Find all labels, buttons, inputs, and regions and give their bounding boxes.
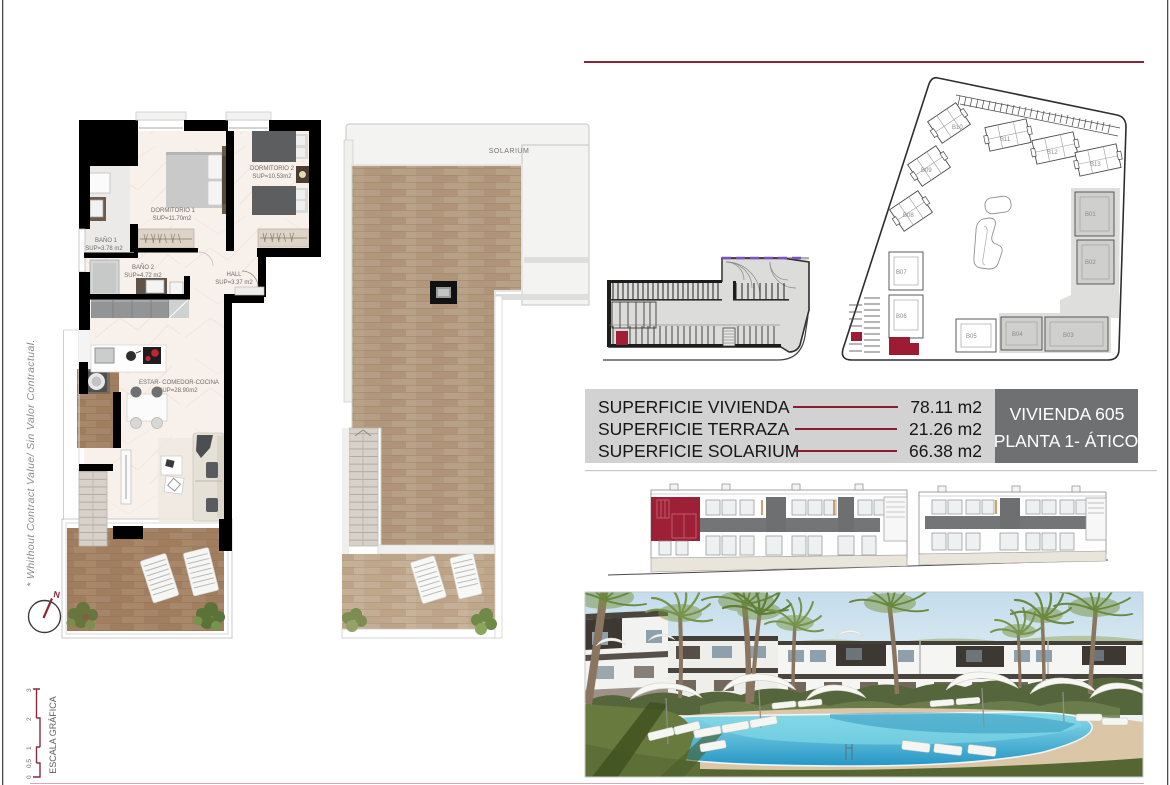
svg-text:DORMITORIO 2: DORMITORIO 2 [250, 166, 295, 172]
svg-text:SUP=10.53m2: SUP=10.53m2 [252, 174, 292, 180]
svg-text:SUPERFICIE TERRAZA: SUPERFICIE TERRAZA [598, 419, 790, 439]
svg-text:2: 2 [26, 717, 33, 721]
svg-text:B11: B11 [1000, 137, 1011, 143]
svg-text:B05: B05 [966, 334, 977, 340]
svg-text:0,5: 0,5 [26, 759, 33, 768]
svg-text:SUPERFICIE SOLARIUM: SUPERFICIE SOLARIUM [598, 441, 799, 461]
svg-text:B03: B03 [1063, 333, 1074, 339]
svg-text:B07: B07 [896, 270, 907, 276]
svg-text:PLANTA 1- ÁTICO: PLANTA 1- ÁTICO [994, 431, 1139, 451]
svg-text:B10: B10 [952, 125, 963, 131]
svg-text:1: 1 [26, 746, 33, 750]
svg-text:SOLARIUM: SOLARIUM [489, 148, 530, 155]
svg-text:SUP=3.37 m2: SUP=3.37 m2 [215, 280, 253, 286]
svg-text:B06: B06 [896, 314, 907, 320]
svg-text:66.38 m2: 66.38 m2 [909, 441, 982, 461]
svg-text:SUP=11.70m2: SUP=11.70m2 [153, 216, 192, 222]
svg-text:SUP=3.78 m2: SUP=3.78 m2 [85, 246, 123, 252]
svg-text:78.11 m2: 78.11 m2 [910, 397, 982, 417]
svg-text:B01: B01 [1085, 212, 1096, 218]
svg-text:SUPERFICIE VIVIENDA: SUPERFICIE VIVIENDA [598, 397, 790, 417]
svg-text:B09: B09 [921, 168, 932, 174]
svg-text:B04: B04 [1012, 332, 1023, 338]
svg-text:DORMITORIO 1: DORMITORIO 1 [151, 208, 196, 214]
svg-text:B13: B13 [1090, 162, 1101, 168]
svg-text:BAÑO 1: BAÑO 1 [95, 237, 118, 244]
svg-text:0: 0 [26, 775, 33, 779]
svg-text:B12: B12 [1047, 150, 1058, 156]
svg-text:VIVIENDA 605: VIVIENDA 605 [1010, 404, 1125, 424]
svg-text:ESCALA GRÁFICA: ESCALA GRÁFICA [48, 696, 58, 774]
svg-text:3: 3 [26, 688, 33, 692]
svg-text:B02: B02 [1085, 260, 1096, 266]
svg-text:B08: B08 [903, 213, 914, 219]
svg-text:SUP=4.72 m2: SUP=4.72 m2 [124, 273, 162, 279]
svg-text:SUP=28.90m2: SUP=28.90m2 [158, 388, 198, 394]
svg-text:* Whithout Contract Value/ Sin: * Whithout Contract Value/ Sin Valor Con… [25, 339, 37, 587]
svg-text:BAÑO 2: BAÑO 2 [132, 264, 155, 271]
svg-text:21.26 m2: 21.26 m2 [909, 419, 982, 439]
svg-text:ESTAR- COMEDOR-COCINA: ESTAR- COMEDOR-COCINA [139, 380, 219, 386]
svg-text:HALL: HALL [226, 272, 242, 278]
